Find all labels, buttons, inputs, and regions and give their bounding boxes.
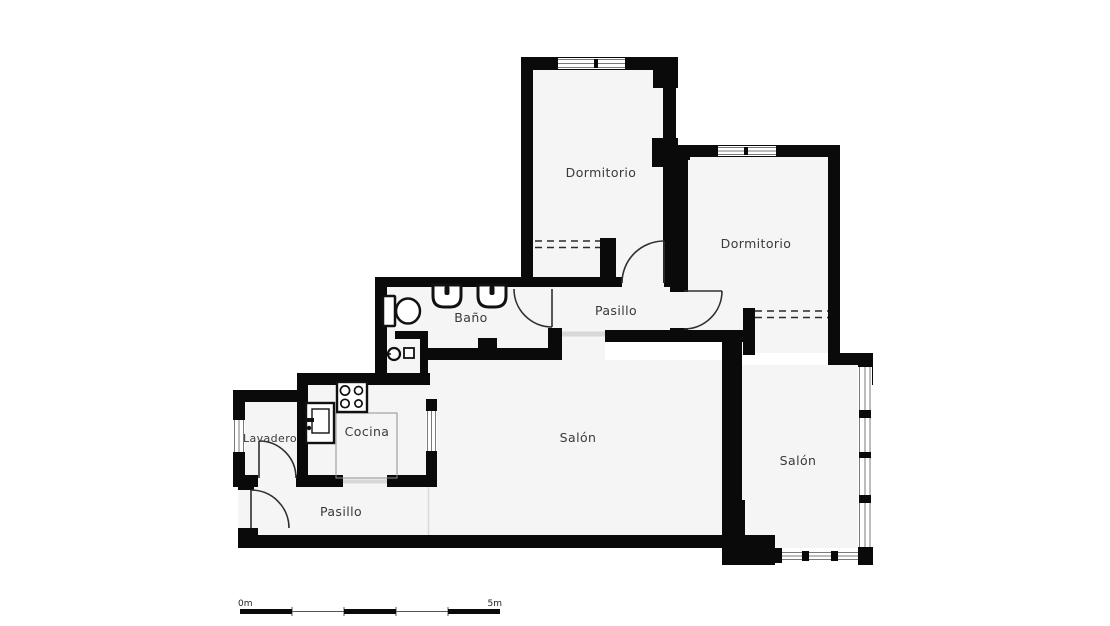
kitchen-sink-icon xyxy=(306,403,334,443)
scale-start-label: 0m xyxy=(238,599,253,609)
room-label-pasillo-2: Pasillo xyxy=(320,504,362,519)
window-icon xyxy=(426,411,437,451)
window-icon xyxy=(858,503,872,547)
window-icon xyxy=(858,458,872,495)
window-icon xyxy=(782,551,858,561)
drain-icon xyxy=(388,348,400,360)
room-label-bano: Baño xyxy=(454,310,487,325)
room-label-salon-1: Salón xyxy=(560,430,597,445)
window-icon xyxy=(718,146,776,156)
window-icon xyxy=(858,367,872,410)
room-label-pasillo-1: Pasillo xyxy=(595,303,637,318)
room-label-cocina: Cocina xyxy=(345,424,390,439)
room-label-dormitorio-2: Dormitorio xyxy=(721,236,792,251)
scale-end-label: 5m xyxy=(488,599,503,609)
room-label-salon-2: Salón xyxy=(780,453,817,468)
window-icon xyxy=(558,58,625,69)
washbasin-icon xyxy=(433,285,461,307)
scale-bar: 0m 5m xyxy=(238,599,502,616)
stove-icon xyxy=(337,382,367,412)
washbasin-icon xyxy=(478,285,506,307)
floor-plan-canvas: Dormitorio Dormitorio Pasillo Baño Cocin… xyxy=(0,0,1110,626)
appliance-icon xyxy=(404,348,414,358)
room-label-dormitorio-1: Dormitorio xyxy=(566,165,637,180)
toilet-icon xyxy=(383,296,420,326)
floor-plan: Dormitorio Dormitorio Pasillo Baño Cocin… xyxy=(0,0,1110,626)
room-label-lavadero: Lavadero xyxy=(243,432,297,445)
window-icon xyxy=(858,418,872,452)
